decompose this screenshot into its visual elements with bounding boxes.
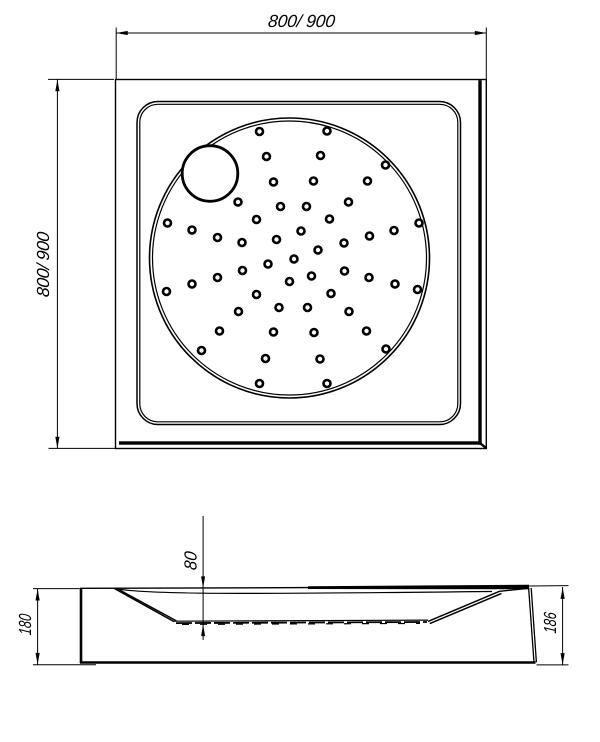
svg-text:80: 80	[180, 550, 200, 571]
svg-text:180: 180	[15, 613, 35, 636]
svg-text:186: 186	[540, 611, 560, 634]
svg-text:800/ 900: 800/ 900	[267, 11, 336, 31]
svg-text:800/ 900: 800/ 900	[33, 231, 53, 298]
